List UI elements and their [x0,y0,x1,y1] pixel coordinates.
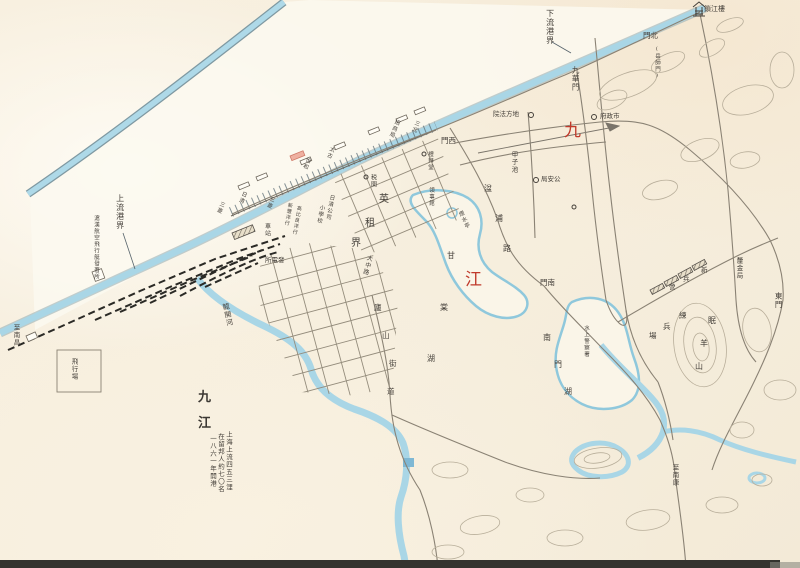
map-label: 湓 [484,185,492,194]
map-label: 道 [387,388,395,396]
map-label: 營 [669,284,676,291]
map-label: 大中路 [361,254,373,276]
map-label: 滬漢航空飛行艇發著所 [92,215,98,280]
map-label: 日清公司 [323,194,333,221]
map-label: 湖 [564,388,572,397]
map-label: 山 [695,363,703,372]
map-label: 至南康 [671,464,678,487]
map-label: 局安公 [541,176,561,183]
map-label: 練 [679,312,687,320]
legend-line-distance: 上海上流四五三浬 [224,431,231,491]
map-label: 水上警察署 [582,325,588,358]
map-label: 門西 [441,137,456,145]
map-label: 甘 [447,252,455,261]
map-label: 至南昌 [12,324,19,347]
map-label: 英 [379,195,389,206]
map-label: 南 [543,334,551,343]
map-label: 龍開河 [221,302,233,327]
map-document: 九江下流港界上流港界滬漢航空飛行艇發著所九華門門北(岳師門)鎖江樓門西門南東門院… [0,0,800,568]
map-label: 眠 [708,317,716,326]
map-label: 門南 [540,279,555,287]
map-labels-layer: 九江下流港界上流港界滬漢航空飛行艇發著所九華門門北(岳師門)鎖江樓門西門南東門院… [0,0,800,568]
map-label: 車站 [263,223,269,237]
map-label: 廬 [374,304,382,312]
map-label: 山 [382,332,390,340]
map-label: 江 [465,271,482,289]
map-label: 院法方地 [493,111,519,118]
map-label: 高比良洋行 [291,205,302,235]
map-label: 禮拜堂 [426,151,432,171]
map-label: 湖 [427,355,435,364]
map-label: 所電發 [265,257,285,264]
map-label: 上流港界 [115,194,124,230]
map-label: 九華門 [571,66,579,92]
map-label: 九 [564,122,581,140]
map-label: 租 [365,219,375,230]
map-label: 門北 [643,32,658,40]
map-label: 領事館 [427,187,433,207]
map-label: 怡和 [300,156,310,170]
map-label: 釐金局 [735,257,742,280]
map-label: 街 [389,360,397,368]
map-label: 太古 [324,145,334,159]
map-label: 日清 [236,190,246,204]
map-label: 浦 [495,215,503,224]
map-label: 煙水亭 [456,210,470,230]
map-label: 鎖江樓 [704,6,725,14]
map-label: 下流港界 [545,9,554,45]
map-label: 場 [649,332,657,340]
legend-line-opened: 一八六一年開港 [208,435,215,488]
map-label: 界 [351,239,361,250]
legend-title-char-1: 九 [198,386,211,405]
map-label: 三菱 [264,195,274,209]
map-label: 税関 [369,174,375,188]
map-label: 新 [701,267,708,274]
map-label: (岳師門) [653,46,659,80]
map-label: 路 [503,245,511,254]
legend-line-residents: 在留邦人約七〇名 [216,433,223,493]
legend-title-char-2: 江 [198,412,211,431]
map-label: 三菱 [214,200,224,214]
map-label: 三北 [409,119,419,133]
map-label: 東門 [774,292,782,309]
map-label: 招商局 [387,118,400,138]
map-label: 府政市 [600,113,620,120]
map-label: 兵 [663,323,671,331]
map-label: 門 [554,361,562,370]
map-label: 小學校 [315,204,324,224]
map-label: 羊 [700,340,708,349]
map-label: 飛行場 [70,358,77,381]
map-label: 甲子池 [510,151,517,174]
map-label: 棠 [440,304,448,313]
map-label: 新豐洋行 [283,202,292,227]
map-label: 兵 [683,276,690,283]
